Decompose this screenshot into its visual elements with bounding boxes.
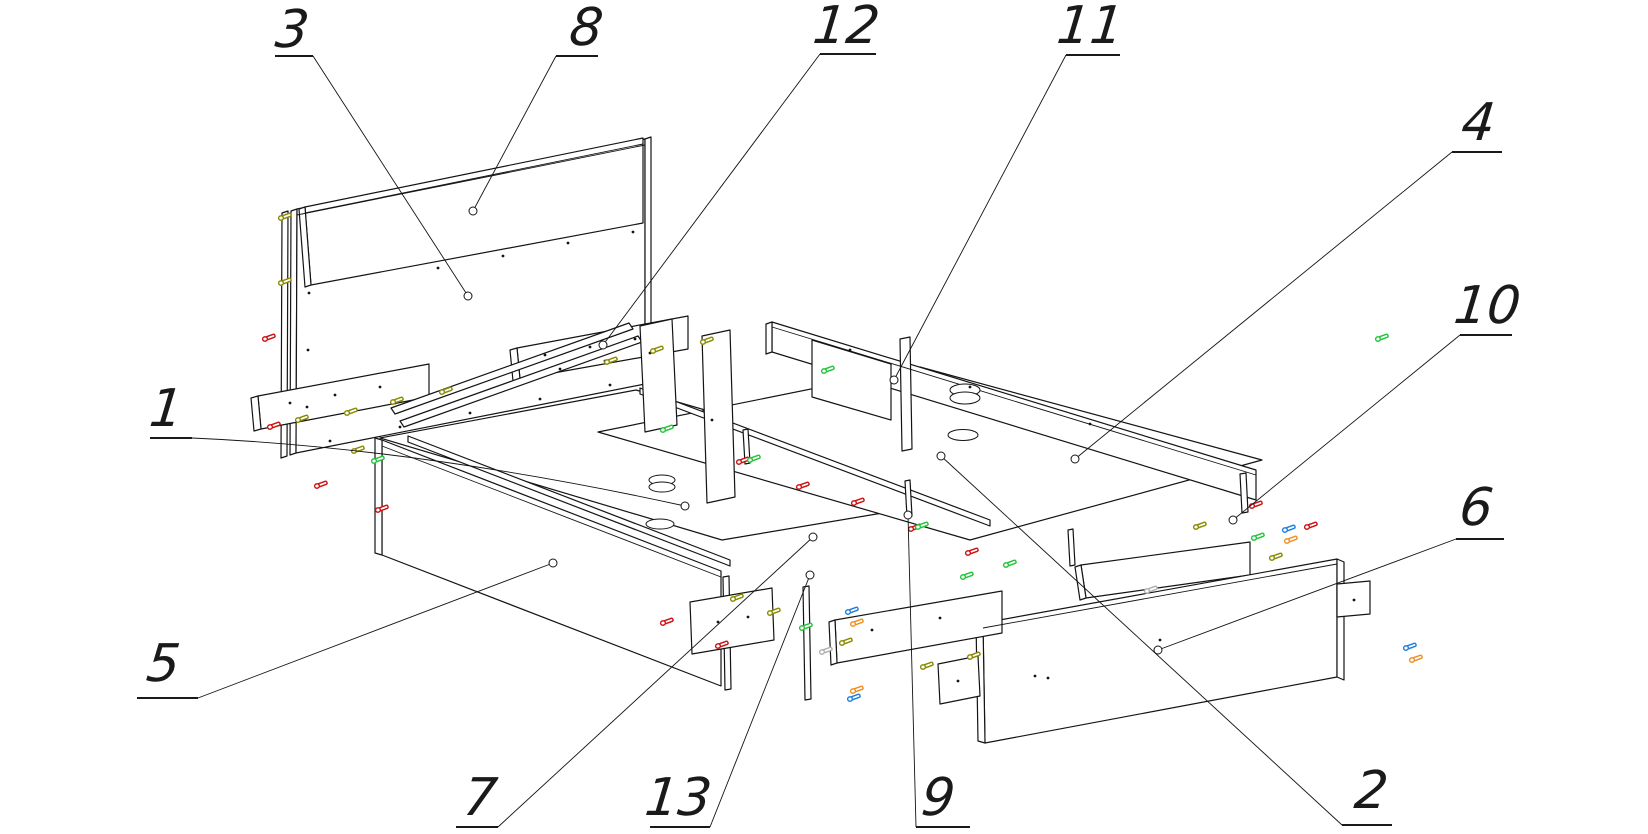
part-number-label-9: 9 [919, 768, 958, 828]
pilot-hole-36 [711, 419, 714, 422]
pilot-hole-14 [379, 386, 382, 389]
pilot-hole-9 [308, 292, 311, 295]
part-number-label-5: 5 [144, 634, 183, 694]
pilot-hole-5 [399, 426, 402, 429]
pilot-hole-13 [334, 394, 337, 397]
leader-endpoint-8 [469, 207, 477, 215]
leader-endpoint-9 [904, 511, 912, 519]
exploded-diagram: 13812114106291375 [0, 0, 1648, 834]
pilot-hole-31 [939, 617, 942, 620]
pilot-hole-6 [469, 412, 472, 415]
left-deck-cylinder-base [649, 482, 675, 492]
pilot-hole-11 [306, 406, 309, 409]
leader-endpoint-2 [937, 452, 945, 460]
back-long-rail-cap [766, 322, 772, 354]
pilot-hole-35 [1353, 599, 1356, 602]
leader-endpoint-4 [1071, 455, 1079, 463]
standing-board-2 [702, 330, 735, 503]
footboard-right-edge [1337, 559, 1344, 680]
right-deck-cylinder-base [950, 392, 980, 404]
pilot-hole-24 [849, 349, 852, 352]
pilot-hole-8 [609, 384, 612, 387]
part-number-label-4: 4 [1459, 93, 1498, 153]
pilot-hole-2 [567, 242, 570, 245]
pilot-hole-25 [969, 386, 972, 389]
pilot-hole-10 [307, 349, 310, 352]
leader-endpoint-10 [1229, 516, 1237, 524]
pilot-hole-33 [747, 616, 750, 619]
pilot-hole-27 [1034, 675, 1037, 678]
part-number-label-8: 8 [567, 0, 606, 58]
pilot-hole-29 [1159, 639, 1162, 642]
center-drawer-rail-cap [829, 620, 837, 665]
part-number-label-1: 1 [147, 379, 186, 439]
post-upper-4 [1240, 473, 1248, 513]
pilot-hole-28 [1047, 677, 1050, 680]
post-lower-2 [803, 586, 811, 700]
leader-endpoint-12 [599, 341, 607, 349]
standing-board-4 [900, 337, 912, 451]
leader-endpoint-3 [464, 292, 472, 300]
leader-endpoint-11 [890, 376, 898, 384]
part-number-label-7: 7 [461, 768, 500, 828]
pilot-hole-1 [502, 255, 505, 258]
pilot-hole-7 [539, 398, 542, 401]
leader-endpoint-7 [809, 533, 817, 541]
part-number-label-3: 3 [273, 0, 312, 60]
bed-frame-drawing: 13812114106291375 [0, 0, 1648, 834]
part-number-label-13: 13 [642, 768, 714, 828]
pilot-hole-20 [634, 338, 637, 341]
pilot-hole-0 [437, 267, 440, 270]
part-number-label-2: 2 [1352, 761, 1391, 821]
left-bracket-tab [938, 656, 980, 704]
pilot-hole-12 [289, 402, 292, 405]
pilot-hole-34 [957, 680, 960, 683]
pilot-hole-21 [559, 368, 562, 371]
right-deck-slot [948, 430, 978, 441]
part-number-label-10: 10 [1451, 276, 1523, 336]
pilot-hole-19 [589, 346, 592, 349]
pilot-hole-30 [871, 629, 874, 632]
leader-endpoint-13 [806, 571, 814, 579]
left-deck-slot [646, 519, 674, 529]
leader-endpoint-1 [681, 502, 689, 510]
pilot-hole-26 [1089, 423, 1092, 426]
pilot-hole-18 [544, 354, 547, 357]
part-number-label-11: 11 [1054, 0, 1126, 56]
part-number-label-12: 12 [810, 0, 882, 56]
standing-board-1 [640, 319, 677, 432]
left-side-panel-cap [375, 438, 382, 555]
part-number-label-6: 6 [1457, 478, 1496, 538]
leader-endpoint-5 [549, 559, 557, 567]
pilot-hole-3 [632, 231, 635, 234]
pilot-hole-4 [329, 440, 332, 443]
